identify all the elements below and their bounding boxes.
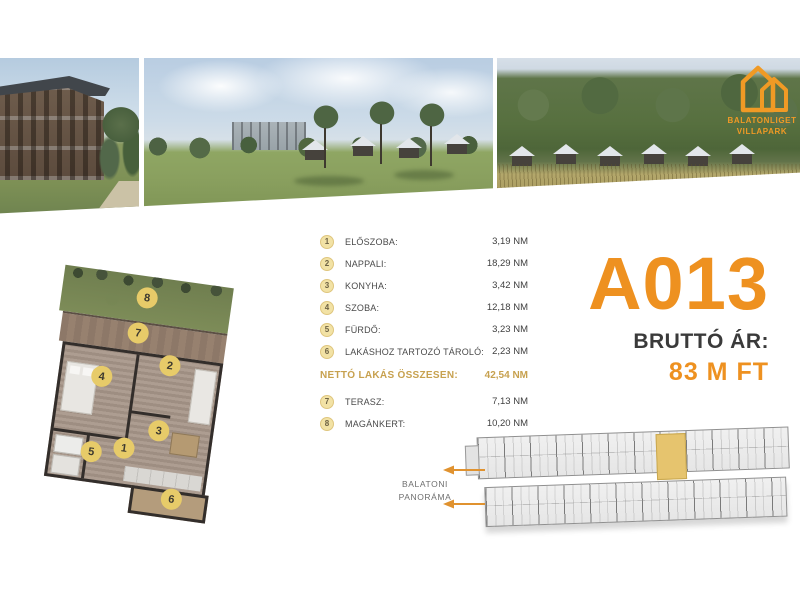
- room-row-nappali: 2 NAPPALI: 18,29 NM: [320, 256, 528, 271]
- panorama-arrow-icon: [443, 465, 485, 475]
- room-label: SZOBA:: [345, 303, 379, 313]
- photo-strip: [0, 58, 800, 215]
- highlighted-unit: [656, 433, 688, 480]
- unit-id: A013: [588, 250, 769, 318]
- room-number-badge: 7: [320, 395, 334, 409]
- room-area-value: 3,19 NM: [492, 236, 528, 247]
- room-number-badge: 8: [320, 417, 334, 431]
- room-area-value: 7,13 NM: [492, 396, 528, 407]
- villapark-logo-text: BALATONLIGET VILLAPARK: [710, 116, 800, 138]
- bathtub-fixture: [53, 434, 83, 456]
- room-label: LAKÁSHOZ TARTOZÓ TÁROLÓ:: [345, 347, 484, 357]
- photo-park-view: [144, 58, 493, 215]
- room-label: FÜRDŐ:: [345, 325, 381, 335]
- room-row-terasz: 7 TERASZ: 7,13 NM: [320, 394, 528, 409]
- apartment-floorplan: 1 2 3 4 5 6 7 8: [32, 265, 240, 527]
- building-facade: [0, 88, 104, 180]
- photo-building-exterior: [0, 58, 139, 215]
- room-area-value: 3,23 NM: [492, 324, 528, 335]
- gabled-house: [597, 146, 623, 166]
- room-number-badge: 5: [320, 323, 334, 337]
- logo-line2: VILLAPARK: [710, 127, 800, 138]
- tree-shadow: [294, 176, 364, 186]
- net-total-value: 42,54 NM: [485, 370, 528, 381]
- reed-bed: [497, 164, 800, 198]
- room-label: TERASZ:: [345, 397, 384, 407]
- gabled-house: [685, 146, 711, 166]
- room-label: KONYHA:: [345, 281, 387, 291]
- room-number-badge: 3: [320, 279, 334, 293]
- gabled-house: [729, 144, 755, 164]
- tree: [95, 100, 139, 188]
- panorama-line1: BALATONI: [383, 478, 467, 491]
- gabled-house: [396, 138, 422, 158]
- room-label: ELŐSZOBA:: [345, 237, 398, 247]
- room-area-value: 10,20 NM: [487, 418, 528, 429]
- room-label: NAPPALI:: [345, 259, 386, 269]
- room-number-badge: 2: [320, 257, 334, 271]
- siteplan-upper-row: [477, 426, 790, 479]
- gabled-house: [444, 134, 470, 154]
- room-number-badge: 6: [320, 345, 334, 359]
- room-row-szoba: 4 SZOBA: 12,18 NM: [320, 300, 528, 315]
- net-total-label: NETTÓ LAKÁS ÖSSZESEN:: [320, 370, 458, 381]
- gabled-house: [641, 144, 667, 164]
- tree-shadow: [394, 170, 454, 180]
- room-row-magankert: 8 MAGÁNKERT: 10,20 NM: [320, 416, 528, 431]
- siteplan-lower-row: [484, 477, 787, 528]
- room-label: MAGÁNKERT:: [345, 419, 405, 429]
- interior-wall: [128, 410, 170, 419]
- price-block: A013 BRUTTÓ ÁR: 83 M FT: [588, 250, 769, 387]
- road: [736, 191, 800, 215]
- brochure-page: BALATONLIGET VILLAPARK 1 ELŐSZOBA: 3,19 …: [0, 0, 800, 600]
- interior-wall: [125, 354, 140, 440]
- room-area-value: 18,29 NM: [487, 258, 528, 269]
- room-row-eloszoba: 1 ELŐSZOBA: 3,19 NM: [320, 234, 528, 249]
- bathroom-fixture: [50, 454, 80, 477]
- room-row-tarolo: 6 LAKÁSHOZ TARTOZÓ TÁROLÓ: 2,23 NM: [320, 344, 528, 359]
- room-number-badge: 1: [320, 235, 334, 249]
- villapark-logo-icon: [736, 62, 796, 114]
- room-list: 1 ELŐSZOBA: 3,19 NM 2 NAPPALI: 18,29 NM …: [320, 234, 528, 438]
- dining-table-furniture: [169, 432, 200, 458]
- room-row-furdo: 5 FÜRDŐ: 3,23 NM: [320, 322, 528, 337]
- room-area-value: 2,23 NM: [492, 346, 528, 357]
- gross-price-value: 83 M FT: [588, 358, 769, 387]
- logo-line1: BALATONLIGET: [710, 116, 800, 127]
- net-total-row: NETTÓ LAKÁS ÖSSZESEN: 42,54 NM: [320, 370, 528, 381]
- gross-price-label: BRUTTÓ ÁR:: [588, 330, 769, 354]
- building-siteplan: [466, 422, 794, 531]
- room-area-value: 12,18 NM: [487, 302, 528, 313]
- gabled-house: [509, 146, 535, 166]
- panorama-arrow-icon: [443, 499, 485, 509]
- apartment-outline: [44, 341, 223, 498]
- gabled-house: [553, 144, 579, 164]
- sofa-furniture: [188, 369, 217, 426]
- room-area-value: 3,42 NM: [492, 280, 528, 291]
- room-number-badge: 4: [320, 301, 334, 315]
- gabled-house: [350, 136, 376, 156]
- room-row-konyha: 3 KONYHA: 3,42 NM: [320, 278, 528, 293]
